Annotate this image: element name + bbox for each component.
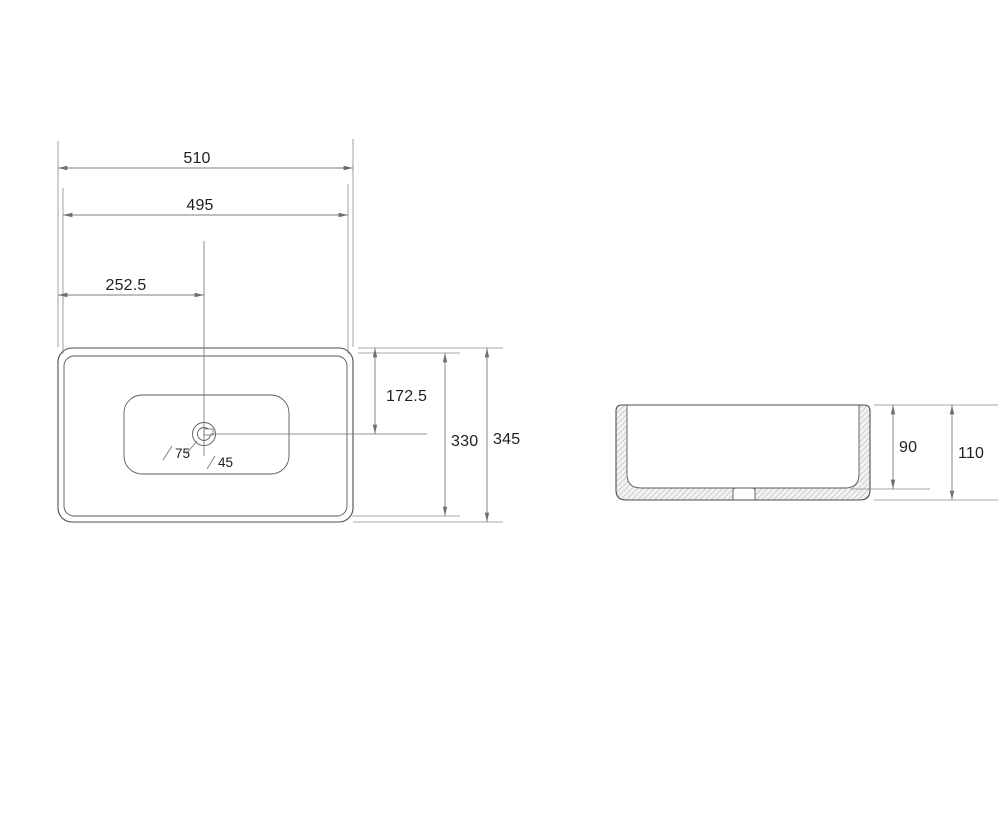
section-outer-outline <box>616 405 870 500</box>
diameter-slash <box>163 446 172 460</box>
section-cavity-outline <box>627 405 859 488</box>
dimension-label-drain-offset-y: 172.5 <box>386 388 427 405</box>
dimension-overall-width: 510 <box>58 139 353 347</box>
section-view: 90 110 <box>616 405 998 500</box>
basin-dimension-drawing: 510 495 252.5 172.5 330 <box>0 0 1000 833</box>
basin-rim-inner-outline <box>64 356 347 516</box>
dimension-drain-offset-x: 252.5 <box>58 277 204 295</box>
section-drain-notch-outline <box>733 488 755 500</box>
dimension-label-overall-depth: 345 <box>493 431 520 448</box>
dimension-inner-depth: 330 <box>445 353 478 516</box>
dimension-overall-depth: 345 <box>487 348 520 522</box>
dimension-label-bowl-depth: 90 <box>899 439 917 456</box>
dimension-drain-offset-y: 172.5 <box>375 348 427 434</box>
dimension-label-overall-height: 110 <box>958 445 984 462</box>
section-material-hatch <box>616 405 870 500</box>
drain-inner-diameter-label: 45 <box>218 455 233 470</box>
dimension-label-overall-width: 510 <box>183 150 210 167</box>
dimension-label-inner-width: 495 <box>186 197 213 214</box>
dimension-bowl-depth: 90 <box>893 405 917 489</box>
dimension-overall-height: 110 <box>952 405 984 500</box>
dimension-label-drain-offset-x: 252.5 <box>105 277 146 294</box>
drain-diameter-callouts: 75 45 <box>163 441 233 470</box>
drain-outer-diameter-label: 75 <box>175 446 190 461</box>
top-view: 510 495 252.5 172.5 330 <box>58 139 520 522</box>
dimension-inner-width: 495 <box>63 184 348 354</box>
diameter-slash <box>207 456 215 469</box>
dimension-label-inner-depth: 330 <box>451 433 478 450</box>
drawing-canvas: 510 495 252.5 172.5 330 <box>0 0 1000 833</box>
